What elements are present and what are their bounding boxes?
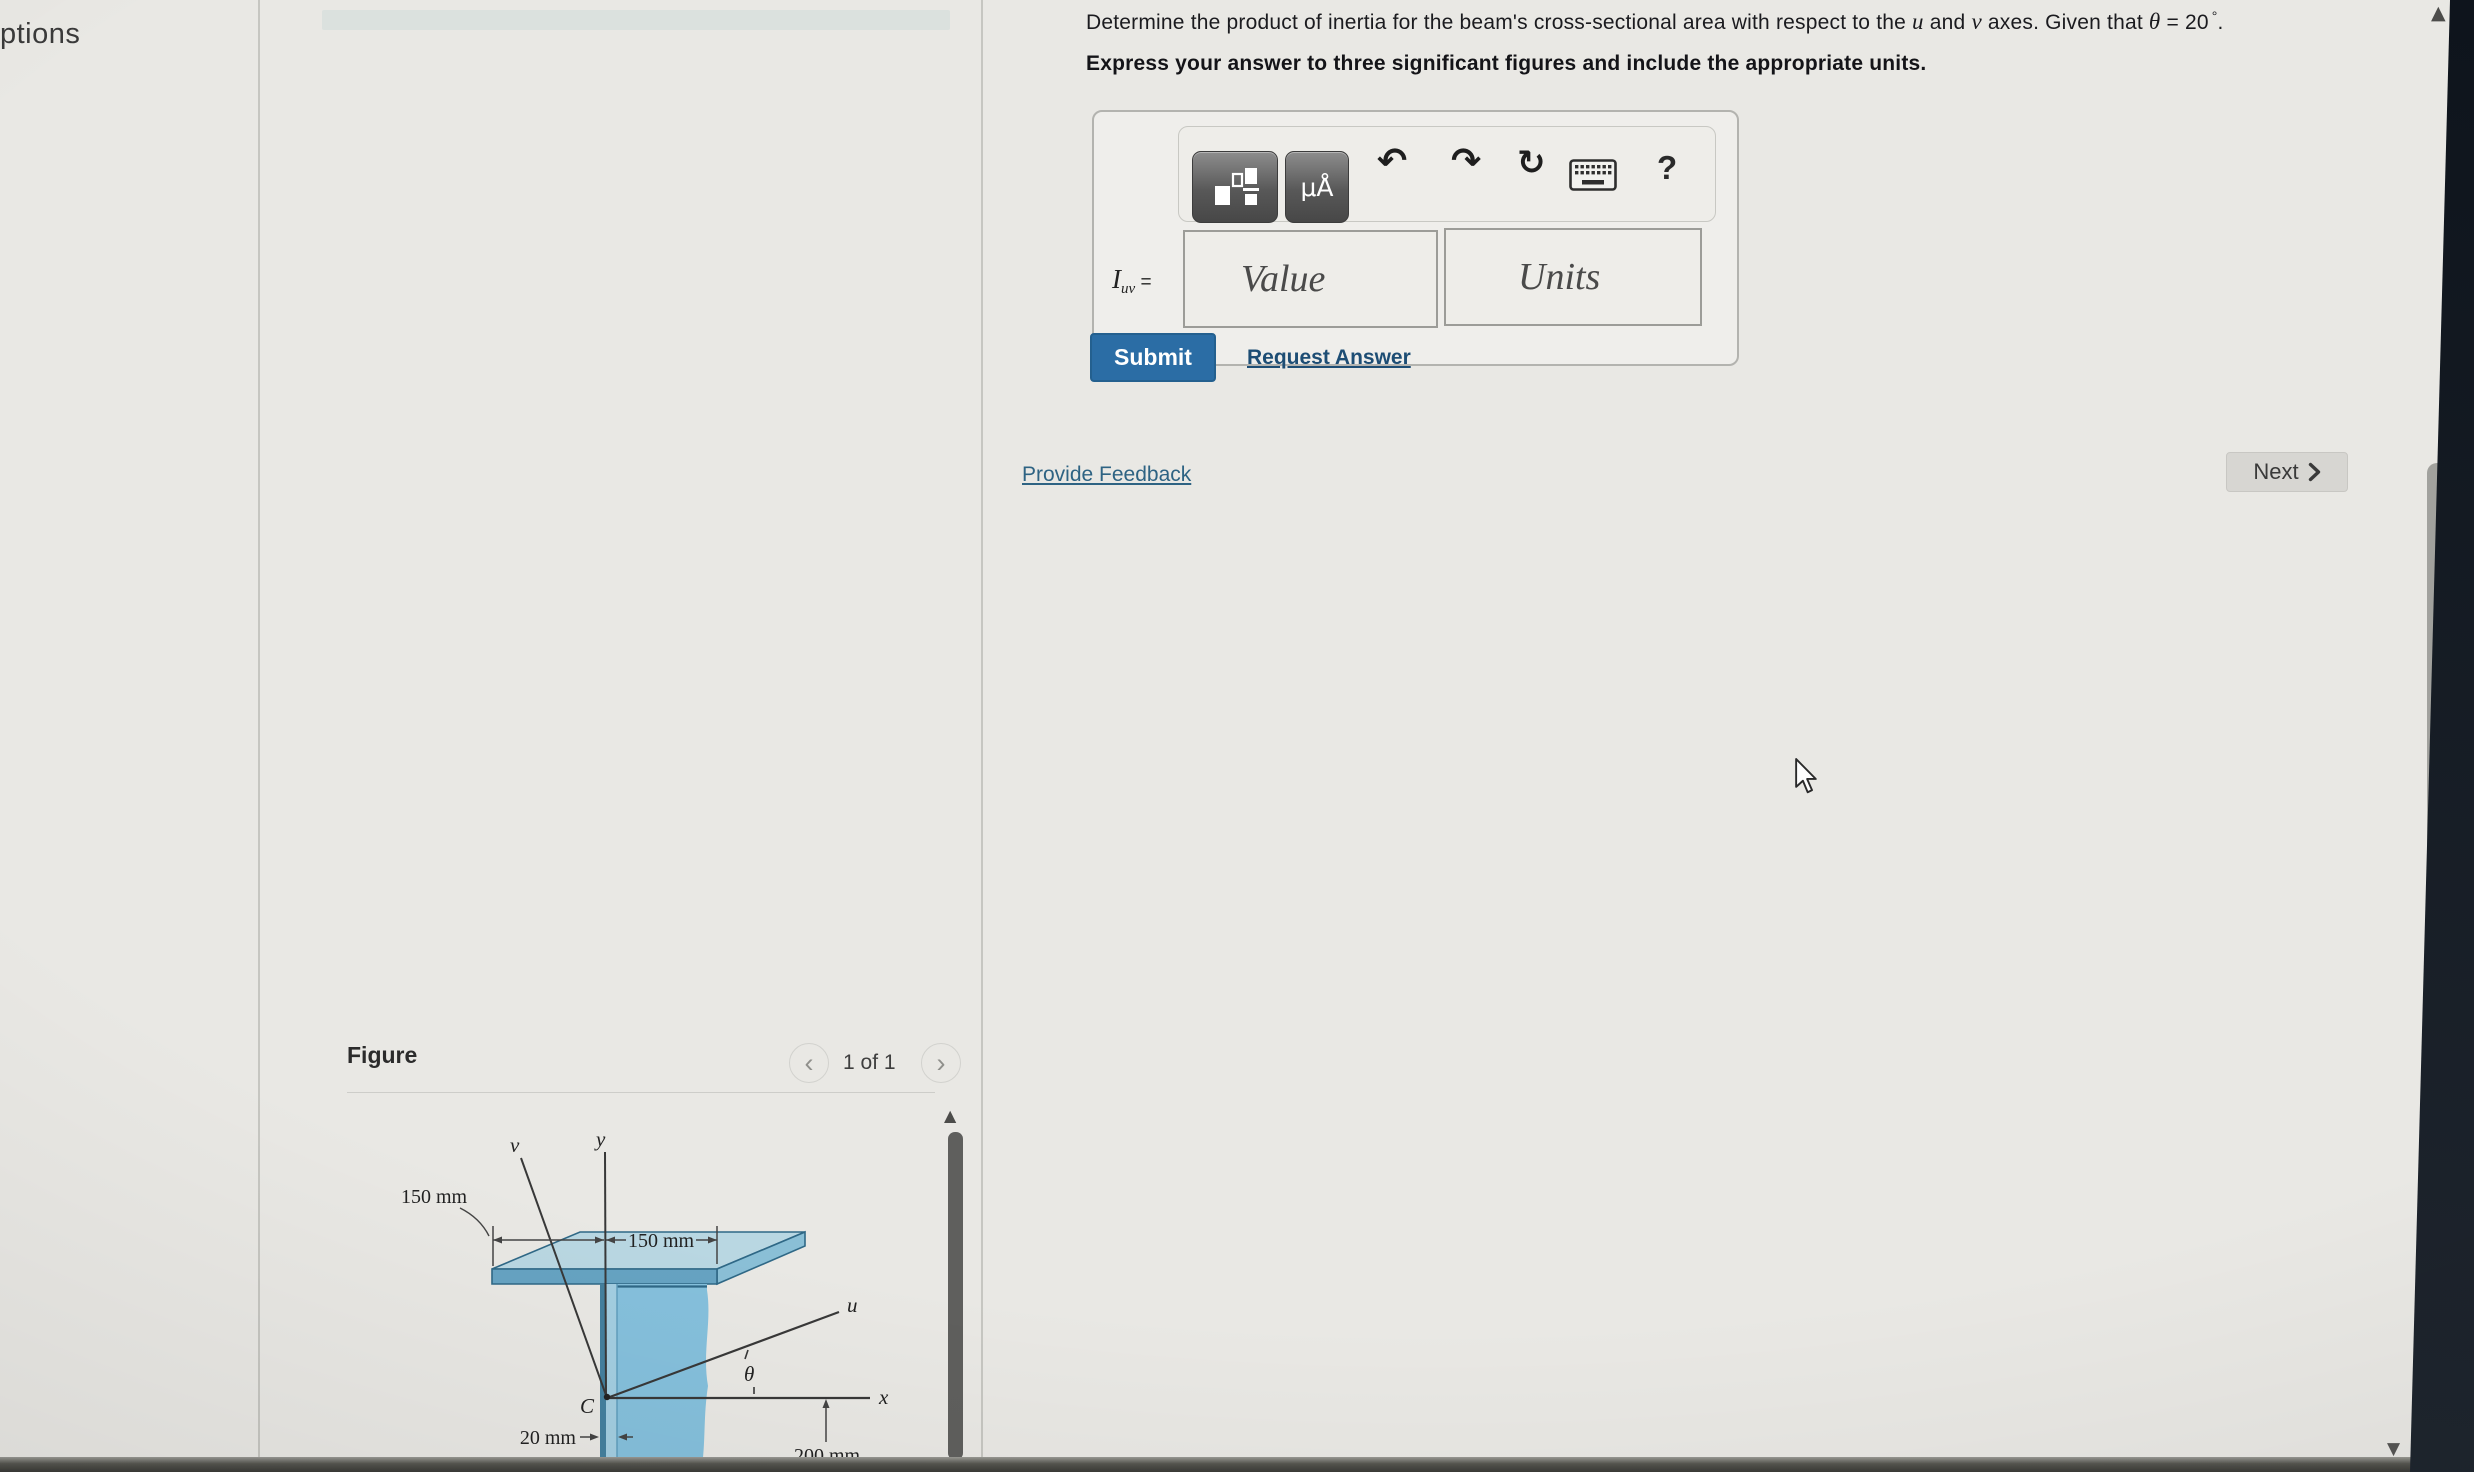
collapsed-header-strip: [322, 10, 950, 30]
request-answer-link[interactable]: Request Answer: [1247, 346, 1411, 370]
x-axis-label: x: [878, 1385, 889, 1409]
var-u: u: [1912, 9, 1924, 34]
next-button[interactable]: Next: [2226, 452, 2348, 492]
units-button[interactable]: μÅ: [1285, 151, 1349, 223]
dim-web-thickness-label: 20 mm: [520, 1427, 577, 1449]
dim-flange-left-label: 150 mm: [401, 1186, 468, 1208]
dim-flange-right-label: 150 mm: [628, 1230, 695, 1252]
y-axis: [605, 1152, 606, 1396]
undo-icon[interactable]: ↶: [1377, 141, 1407, 182]
chevron-right-icon: [2308, 462, 2321, 482]
units-input[interactable]: [1444, 228, 1702, 326]
keyboard-shortcuts-icon[interactable]: [1569, 159, 1617, 191]
figure-prev-button[interactable]: ‹: [789, 1043, 829, 1083]
quantity-label: Iuv =: [1112, 264, 1152, 298]
problem-instruction: Express your answer to three significant…: [1086, 52, 1926, 76]
provide-feedback-link[interactable]: Provide Feedback: [1022, 463, 1191, 487]
dim-depth-arrow: [823, 1399, 830, 1408]
figure-next-button[interactable]: ›: [921, 1043, 961, 1083]
scroll-down-icon[interactable]: ▼: [2387, 1439, 2400, 1459]
equation-toolbar: μÅ ↶ ↷ ↻ ?: [1178, 126, 1716, 222]
centroid-point: [604, 1394, 610, 1400]
dim-left-leader: [460, 1208, 489, 1236]
submit-button[interactable]: Submit: [1090, 333, 1216, 382]
beam-cross-section-figure: y v u x C θ 150 mm 150 mm 20 mm 200 mm: [340, 1100, 940, 1472]
figure-scrollbar-thumb[interactable]: [948, 1132, 963, 1460]
bottom-bezel: [0, 1457, 2474, 1472]
y-axis-label: y: [594, 1127, 606, 1151]
mouse-cursor: [1793, 757, 1821, 795]
scroll-up-icon[interactable]: ▲: [2431, 2, 2446, 24]
left-column-divider: [258, 0, 260, 1457]
statement-text: Determine the product of inertia for the…: [1086, 11, 1912, 34]
dim-web-arrow-out: [590, 1434, 599, 1441]
help-icon[interactable]: ?: [1657, 149, 1677, 187]
theta-label: θ: [744, 1362, 754, 1386]
dim-left-arrow-left: [493, 1237, 502, 1244]
equation-templates-button[interactable]: [1192, 151, 1278, 223]
v-axis-label: v: [510, 1133, 520, 1157]
answer-panel: μÅ ↶ ↷ ↻ ? I: [1092, 110, 1739, 366]
problem-statement: Determine the product of inertia for the…: [1086, 8, 2416, 35]
u-axis-label: u: [847, 1293, 858, 1317]
figure-pagination: 1 of 1: [843, 1051, 896, 1075]
figure-header-divider: [347, 1092, 935, 1093]
value-input[interactable]: [1183, 230, 1438, 328]
figure-scroll-up-icon[interactable]: ▲: [944, 1106, 956, 1125]
var-theta: θ: [2149, 9, 2161, 34]
var-v: v: [1971, 9, 1981, 34]
app-window: ptions Determine the product of inertia …: [0, 0, 2474, 1472]
units-button-label: μÅ: [1300, 173, 1333, 202]
sidebar-options-label[interactable]: ptions: [0, 18, 80, 51]
equation-templates-icon: [1208, 163, 1262, 211]
main-column-divider: [981, 0, 983, 1457]
redo-icon[interactable]: ↷: [1451, 141, 1481, 182]
theta-tick-upper: [745, 1350, 748, 1359]
figure-panel-title: Figure: [347, 1042, 417, 1069]
reset-icon[interactable]: ↻: [1517, 143, 1546, 183]
centroid-label: C: [580, 1394, 595, 1418]
